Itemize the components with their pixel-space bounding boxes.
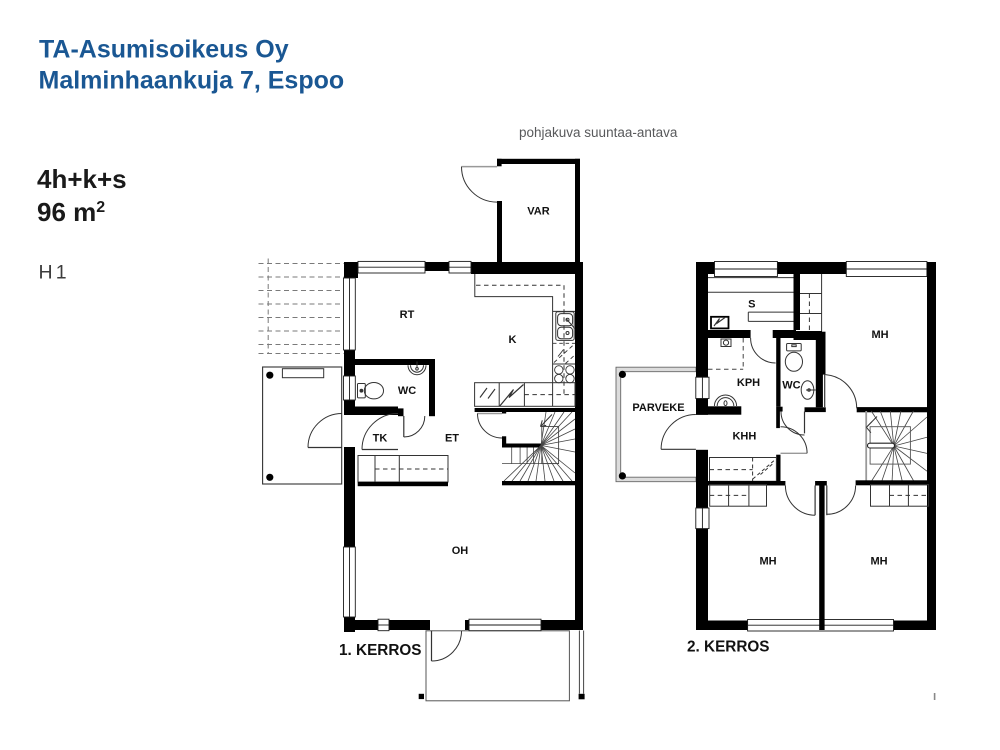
svg-text:TK: TK — [373, 433, 388, 445]
svg-text:MH: MH — [759, 556, 776, 568]
svg-text:ET: ET — [445, 433, 459, 445]
svg-text:TA-Asumisoikeus Oy: TA-Asumisoikeus Oy — [39, 36, 289, 64]
svg-text:RT: RT — [400, 309, 415, 321]
svg-text:MH: MH — [870, 556, 887, 568]
svg-text:2. KERROS: 2. KERROS — [687, 639, 770, 656]
svg-text:PARVEKE: PARVEKE — [632, 402, 684, 414]
svg-text:1. KERROS: 1. KERROS — [339, 642, 422, 659]
svg-text:WC: WC — [782, 380, 800, 392]
svg-text:MH: MH — [871, 329, 888, 341]
svg-text:VAR: VAR — [527, 206, 549, 218]
svg-text:K: K — [509, 334, 517, 346]
svg-text:KPH: KPH — [737, 377, 760, 389]
svg-text:OH: OH — [452, 545, 469, 557]
svg-text:pohjakuva suuntaa-antava: pohjakuva suuntaa-antava — [519, 125, 678, 140]
svg-text:WC: WC — [398, 385, 416, 397]
svg-text:S: S — [748, 299, 755, 311]
svg-text:96 m2: 96 m2 — [37, 197, 105, 227]
svg-text:4h+k+s: 4h+k+s — [37, 164, 127, 194]
svg-text:H 1: H 1 — [39, 262, 66, 284]
svg-text:Malminhaankuja 7, Espoo: Malminhaankuja 7, Espoo — [39, 67, 345, 95]
svg-text:KHH: KHH — [732, 431, 756, 443]
